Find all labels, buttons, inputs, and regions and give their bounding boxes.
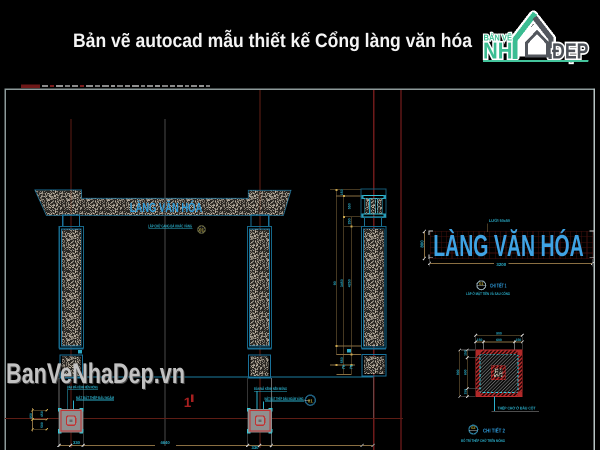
svg-text:01: 01 [479, 281, 484, 286]
svg-text:CHI TIẾT 1: CHI TIẾT 1 [490, 282, 507, 290]
svg-text:330: 330 [73, 440, 81, 445]
svg-text:THÉP CHỜ Ở ĐẦU CỘT: THÉP CHỜ Ở ĐẦU CỘT [498, 405, 536, 410]
svg-text:550: 550 [340, 357, 344, 363]
svg-text:Bản vẽ autocad mẫu thiết kế Cổ: Bản vẽ autocad mẫu thiết kế Cổng làng vă… [73, 29, 472, 52]
svg-text:ĐẸP: ĐẸP [552, 39, 589, 64]
svg-text:900: 900 [456, 369, 460, 375]
svg-text:550: 550 [348, 203, 352, 209]
svg-text:600: 600 [464, 369, 468, 375]
svg-text:330: 330 [252, 445, 260, 450]
svg-text:BanVeNhaDep.vn: BanVeNhaDep.vn [6, 358, 185, 390]
svg-text:150: 150 [340, 189, 344, 195]
svg-text:900: 900 [496, 332, 502, 336]
svg-text:CHI TIẾT 2: CHI TIẾT 2 [483, 426, 505, 434]
svg-text:NH: NH [483, 38, 513, 64]
svg-text:LÀNG VĂN HÓA: LÀNG VĂN HÓA [130, 200, 203, 215]
svg-text:01: 01 [199, 227, 205, 232]
svg-text:LÀNG VĂN HÓA: LÀNG VĂN HÓA [433, 228, 584, 263]
svg-text:BẢN MÃ KÊNH NỀN MÓNG: BẢN MÃ KÊNH NỀN MÓNG [254, 386, 287, 391]
svg-text:LƯỚI 50x50: LƯỚI 50x50 [489, 218, 511, 223]
svg-text:90: 90 [333, 281, 337, 285]
svg-text:01: 01 [308, 398, 314, 403]
svg-text:450: 450 [29, 413, 33, 419]
svg-text:600: 600 [496, 338, 502, 342]
svg-text:02: 02 [471, 425, 476, 430]
svg-text:LẮP CHỮ GANG ĐÁ KHẮC VÀNG: LẮP CHỮ GANG ĐÁ KHẮC VÀNG [148, 224, 192, 229]
svg-text:1: 1 [184, 395, 192, 410]
svg-text:BỐ TRÍ THÉP CHỜ TRÊN MÓNG: BỐ TRÍ THÉP CHỜ TRÊN MÓNG [461, 438, 505, 443]
svg-text:4640: 4640 [160, 440, 170, 445]
svg-text:450: 450 [40, 411, 44, 417]
svg-text:150: 150 [464, 389, 468, 395]
svg-text:MẶT BẬT THÉP ĐẢU NGẬM VÀNG: MẶT BẬT THÉP ĐẢU NGẬM VÀNG [265, 396, 304, 401]
svg-text:150: 150 [516, 338, 522, 342]
svg-text:150: 150 [464, 350, 468, 356]
svg-text:4250: 4250 [347, 279, 351, 287]
svg-text:3200: 3200 [496, 262, 506, 267]
svg-text:MẶT BẬT THÉP ĐẢU NGẬM: MẶT BẬT THÉP ĐẢU NGẬM [76, 395, 114, 400]
svg-text:250: 250 [348, 218, 352, 224]
svg-text:150: 150 [477, 338, 483, 342]
svg-text:3450: 3450 [340, 279, 344, 287]
svg-text:500: 500 [40, 422, 44, 428]
svg-text:800: 800 [420, 240, 425, 248]
svg-text:LẮP Ở MẶT TIỀN VÀ SAU CỔNG: LẮP Ở MẶT TIỀN VÀ SAU CỔNG [466, 291, 510, 296]
